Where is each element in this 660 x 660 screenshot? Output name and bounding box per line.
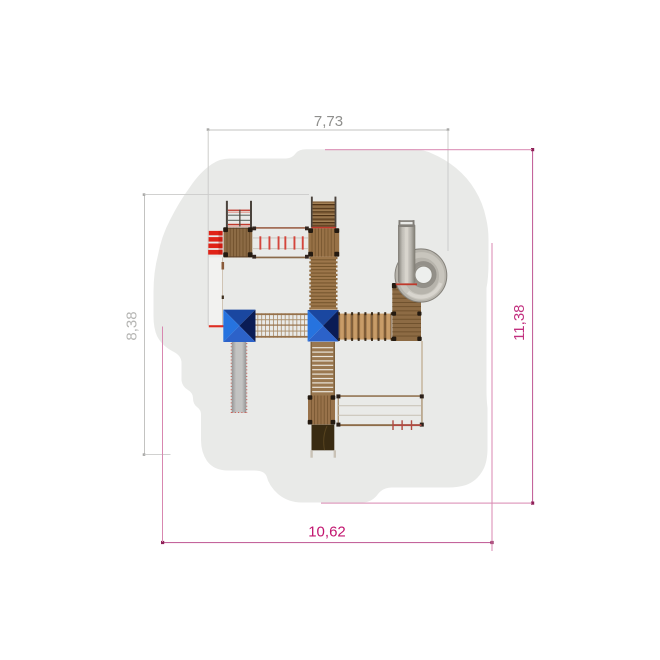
- svg-text:8,38: 8,38: [124, 311, 141, 340]
- svg-text:10,62: 10,62: [308, 524, 346, 541]
- svg-text:7,73: 7,73: [314, 113, 343, 130]
- svg-text:11,38: 11,38: [511, 304, 528, 340]
